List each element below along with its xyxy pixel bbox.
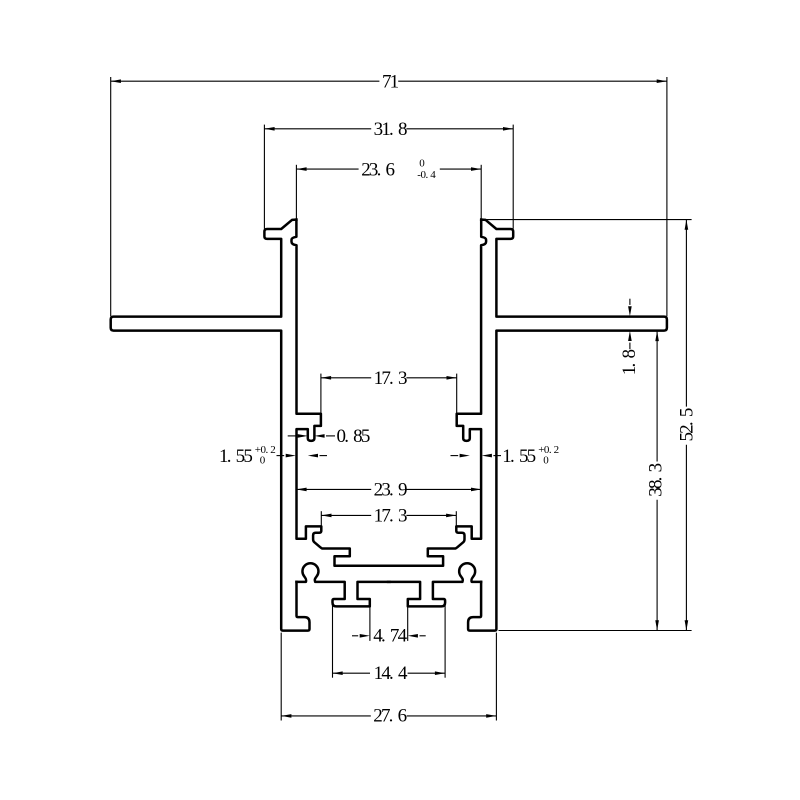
svg-text:+0.2: +0.2: [538, 444, 558, 456]
svg-text:1.55: 1.55: [502, 446, 535, 467]
svg-text:71: 71: [382, 71, 399, 92]
svg-text:-0.4: -0.4: [417, 169, 436, 181]
svg-text:4.74: 4.74: [373, 626, 407, 647]
svg-text:31.8: 31.8: [374, 119, 407, 140]
svg-text:17.3: 17.3: [374, 506, 407, 527]
svg-text:14.4: 14.4: [374, 663, 408, 684]
svg-text:27.6: 27.6: [373, 706, 406, 727]
svg-text:38.3: 38.3: [646, 463, 667, 496]
svg-text:52.5: 52.5: [676, 408, 697, 441]
svg-text:23.6: 23.6: [361, 160, 394, 181]
svg-text:+0.2: +0.2: [255, 444, 275, 456]
svg-text:1.55: 1.55: [219, 446, 252, 467]
svg-text:17.3: 17.3: [374, 368, 407, 389]
svg-text:23.9: 23.9: [374, 480, 407, 501]
svg-text:0.85: 0.85: [337, 426, 370, 447]
